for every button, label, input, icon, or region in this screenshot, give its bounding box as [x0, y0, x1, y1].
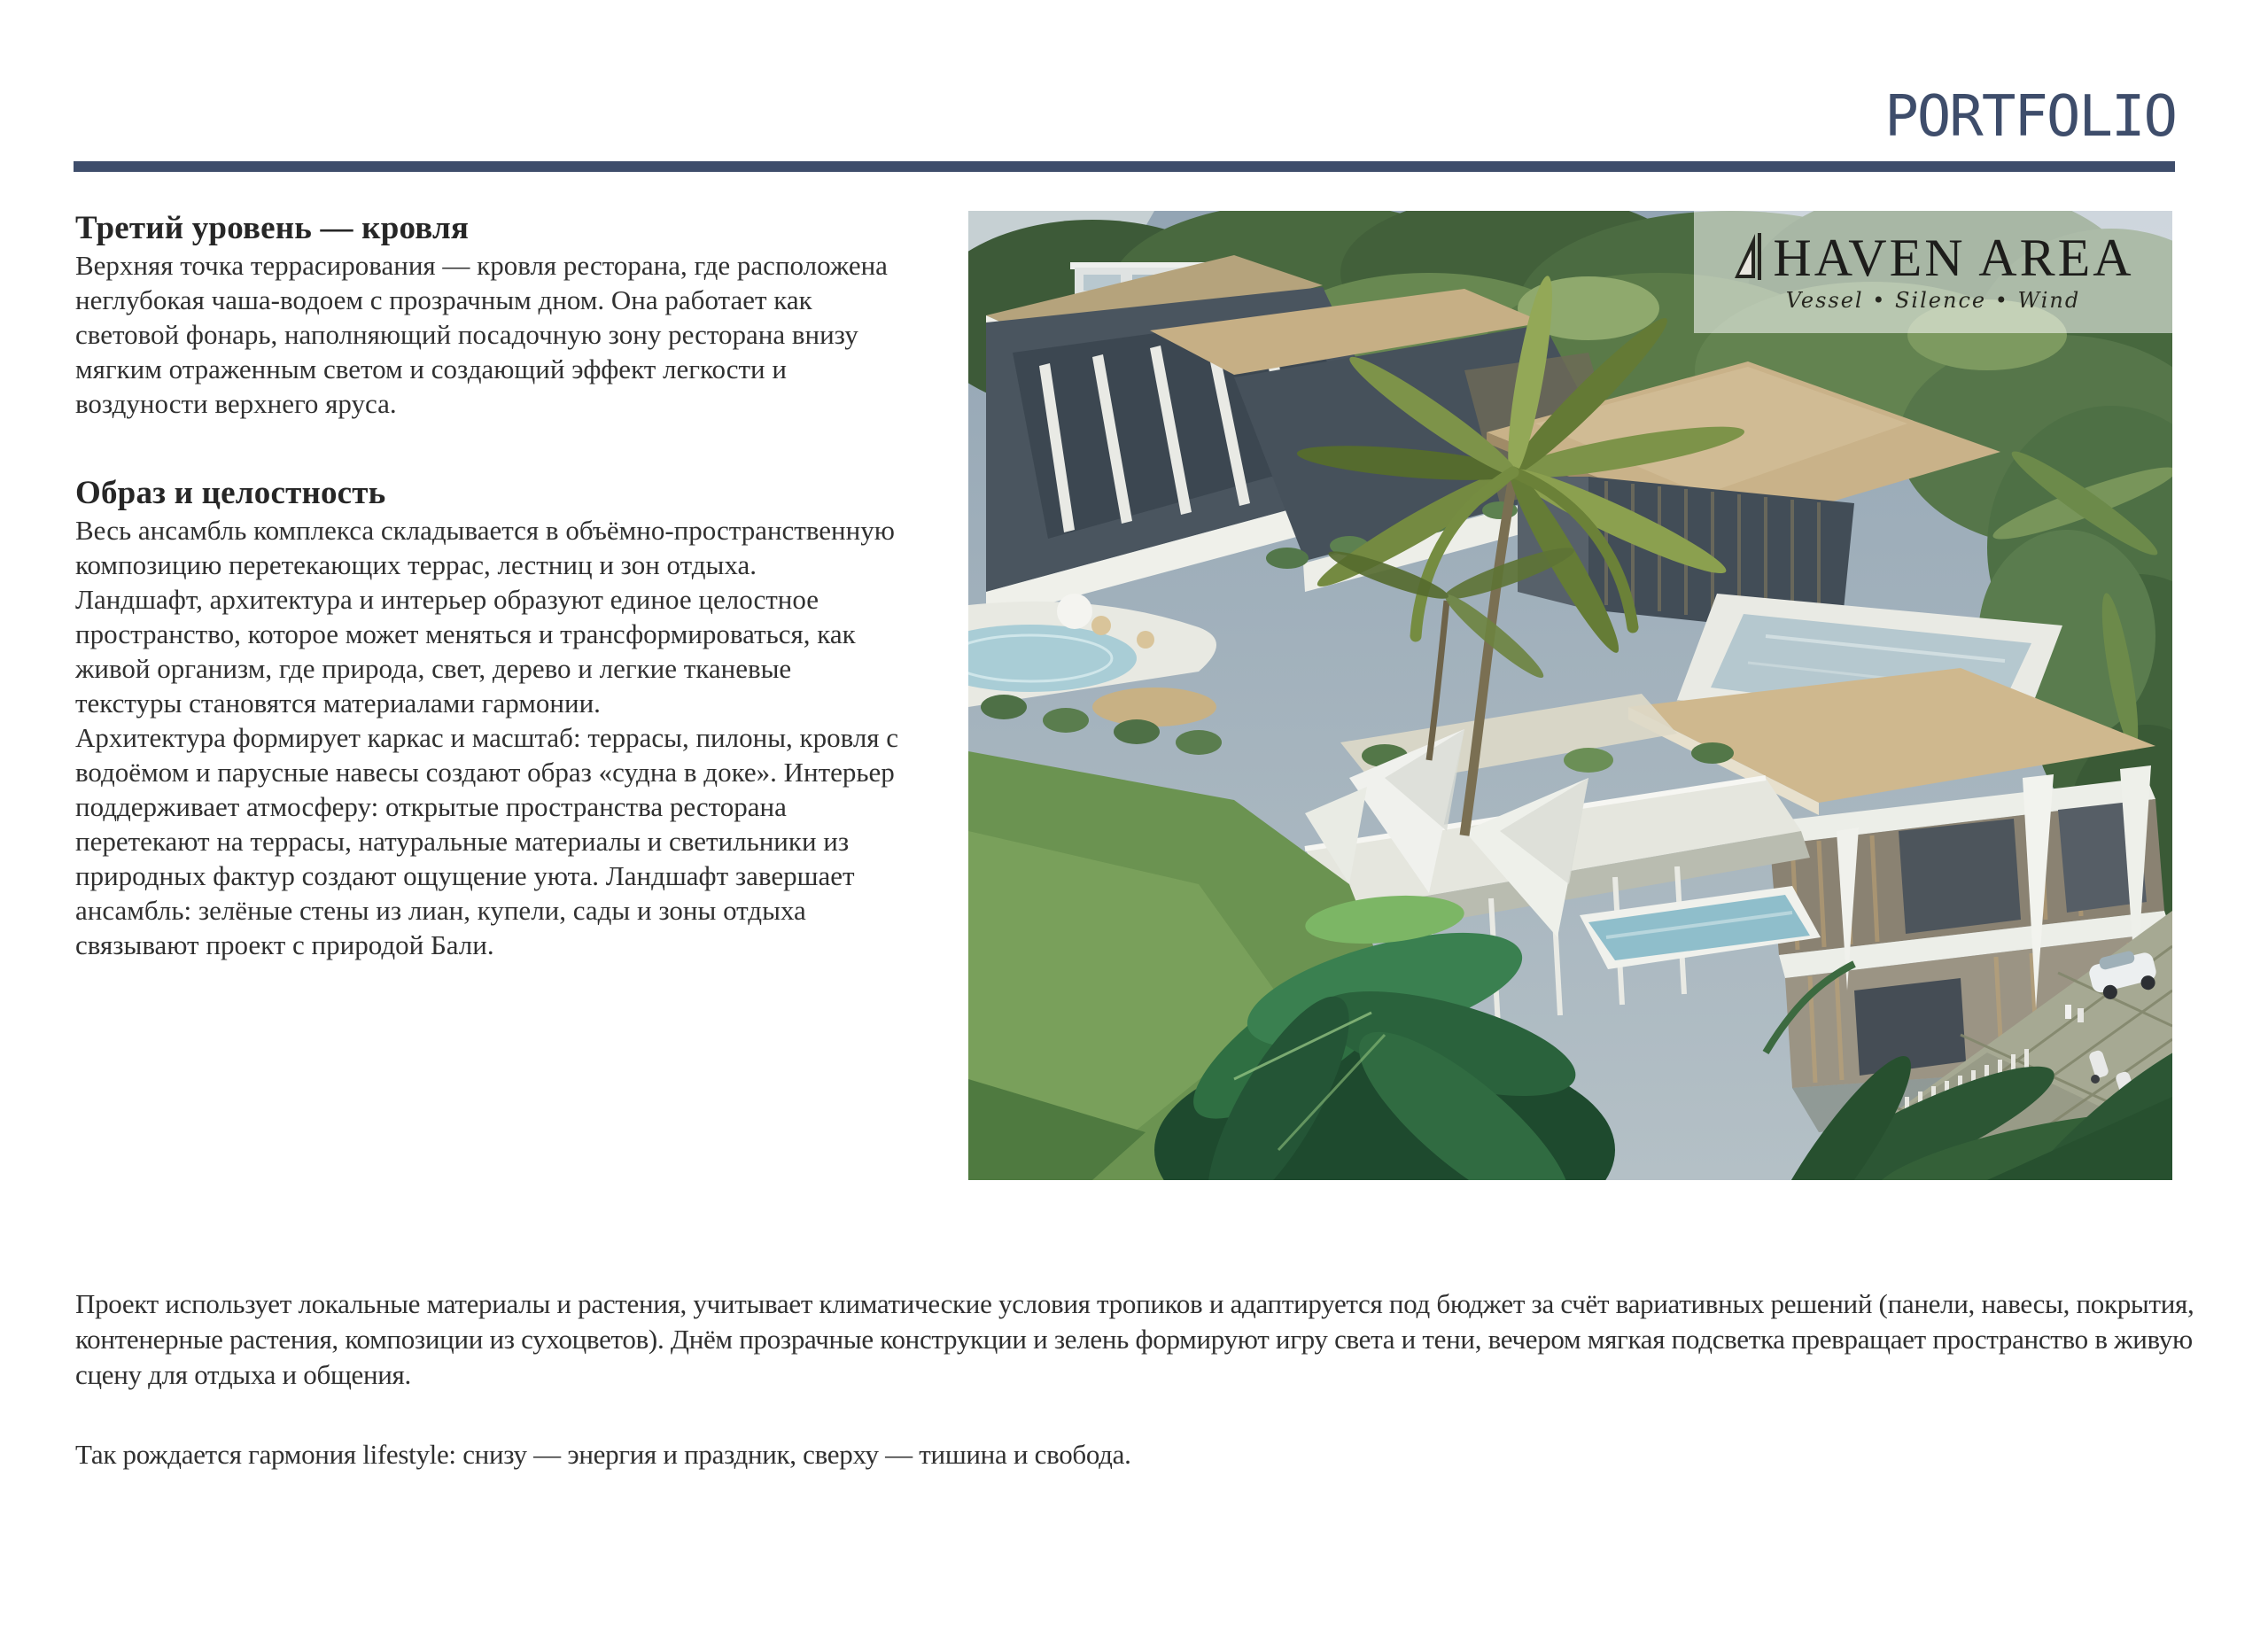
paragraph-materials: Проект использует локальные материалы и … [75, 1286, 2202, 1393]
logo-tagline: Vessel • Silence • Wind [1786, 287, 2081, 314]
paragraph-ensemble: Весь ансамбль комплекса складывается в о… [75, 513, 899, 582]
sail-icon [1732, 230, 1764, 285]
page-title: PORTFOLIO [1884, 89, 2176, 145]
paragraph-lifestyle: Так рождается гармония lifestyle: снизу … [75, 1437, 2202, 1472]
section-heading-roof: Третий уровень — кровля [75, 209, 899, 248]
section-heading-image-integrity: Образ и целостность [75, 474, 899, 513]
paragraph-roof: Верхняя точка террасирования — кровля ре… [75, 248, 899, 421]
hero-render-image: HAVEN AREA Vessel • Silence • Wind [968, 211, 2172, 1180]
header-rule [74, 161, 2175, 172]
text-column: Третий уровень — кровля Верхняя точка те… [75, 209, 899, 962]
paragraph-landscape: Ландшафт, архитектура и интерьер образую… [75, 582, 899, 720]
portfolio-slide: PORTFOLIO Третий уровень — кровля Верхня… [0, 0, 2268, 1647]
paragraph-architecture: Архитектура формирует каркас и масштаб: … [75, 720, 899, 962]
resort-render-illustration [968, 211, 2172, 1180]
logo-name: HAVEN AREA [1773, 230, 2133, 285]
haven-area-logo: HAVEN AREA Vessel • Silence • Wind [1694, 211, 2172, 333]
footer-text-block: Проект использует локальные материалы и … [75, 1286, 2202, 1472]
